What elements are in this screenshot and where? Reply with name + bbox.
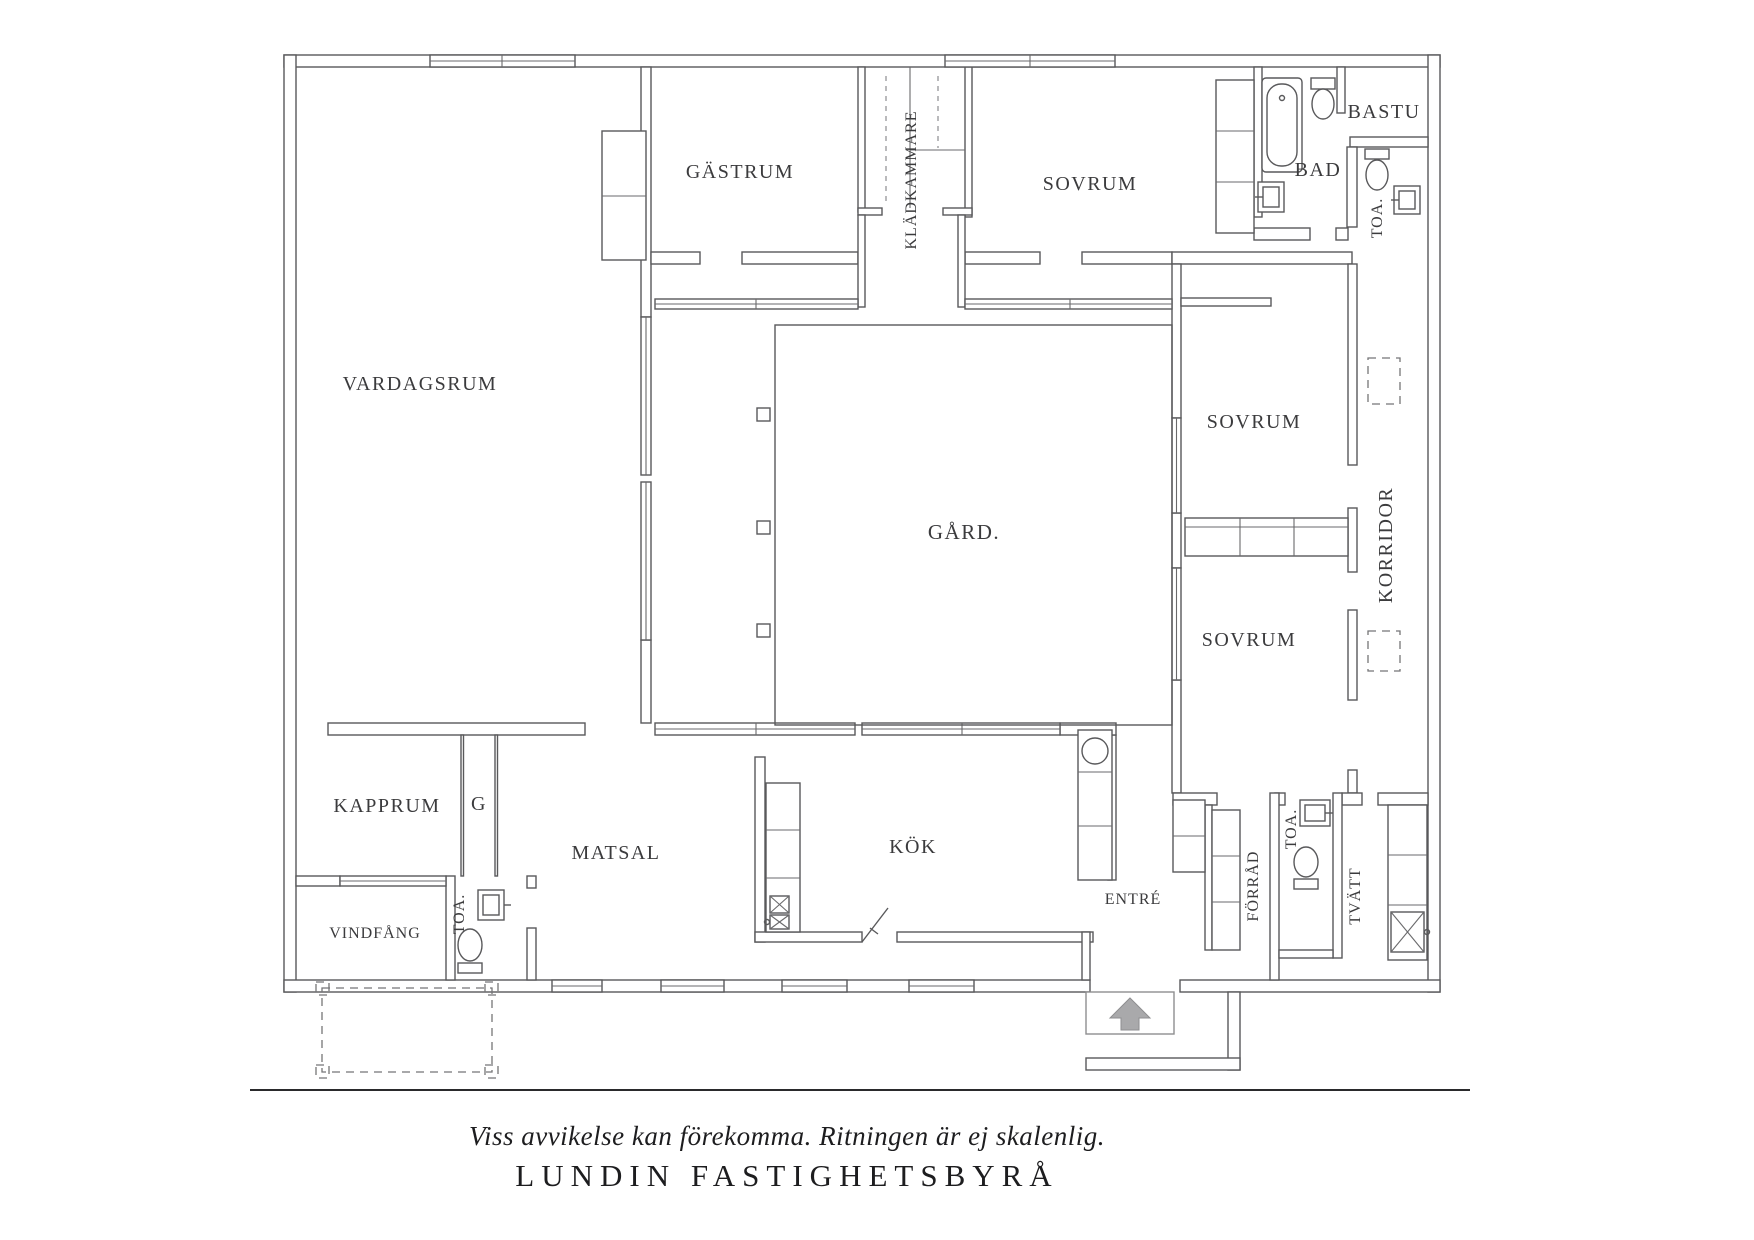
sink-icon — [1300, 800, 1333, 826]
room-label-tvatt: TVÄTT — [1346, 867, 1364, 924]
toilet-icon — [458, 929, 482, 973]
sink-icon — [1391, 186, 1420, 214]
sink-icon — [478, 890, 511, 920]
room-label-toa-left: TOA. — [451, 894, 468, 935]
room-label-entre: ENTRÉ — [1105, 889, 1162, 908]
room-label-kladkammare: KLÄDKAMMARE — [902, 111, 920, 250]
floorplan-drawing: VARDAGSRUM GÄSTRUM KLÄDKAMMARE SOVRUM BA… — [0, 0, 1754, 1240]
sink-icon — [1255, 182, 1284, 212]
room-label-gastrum: GÄSTRUM — [686, 160, 794, 183]
room-label-sovrum-mid: SOVRUM — [1207, 411, 1302, 433]
footer: Viss avvikelse kan förekomma. Ritningen … — [250, 1090, 1470, 1193]
room-label-toa-right: TOA. — [1283, 809, 1300, 850]
room-label-sovrum-top: SOVRUM — [1043, 173, 1138, 195]
toilet-icon — [1294, 847, 1318, 889]
column-post — [757, 521, 770, 534]
dashed-patio — [316, 982, 498, 1078]
footer-brand: LUNDIN FASTIGHETSBYRÅ — [515, 1158, 1058, 1193]
room-label-g-closet: G — [471, 793, 487, 815]
room-label-bad: BAD — [1295, 159, 1342, 181]
column-post — [757, 624, 770, 637]
room-label-gard: GÅRD. — [928, 520, 1000, 544]
door-swing-icon — [862, 908, 888, 942]
wardrobe-rails — [886, 67, 965, 208]
room-label-vardagsrum: VARDAGSRUM — [343, 373, 498, 395]
closets-furniture — [602, 80, 1427, 960]
room-label-korridor: KORRIDOR — [1375, 487, 1397, 603]
floorplan-page: VARDAGSRUM GÄSTRUM KLÄDKAMMARE SOVRUM BA… — [0, 0, 1754, 1240]
room-label-kapprum: KAPPRUM — [333, 795, 440, 817]
bathtub-icon — [1262, 78, 1302, 172]
room-label-bastu: BASTU — [1347, 101, 1420, 123]
toilet-icon — [1311, 78, 1335, 119]
kitchen-sink-icon — [1082, 738, 1108, 764]
washing-machine-icon — [1391, 912, 1430, 952]
footer-disclaimer: Viss avvikelse kan förekomma. Ritningen … — [469, 1121, 1105, 1151]
room-label-forrad: FÖRRÅD — [1244, 851, 1262, 922]
entrance-arrow-icon — [1086, 992, 1174, 1034]
room-label-matsal: MATSAL — [571, 842, 660, 864]
column-post — [757, 408, 770, 421]
room-label-kok: KÖK — [889, 835, 937, 858]
toilet-icon — [1365, 149, 1389, 190]
room-label-sovrum-low: SOVRUM — [1202, 629, 1297, 651]
room-label-vindfang: VINDFÅNG — [329, 924, 421, 942]
room-label-toa-top: TOA. — [1369, 198, 1386, 239]
